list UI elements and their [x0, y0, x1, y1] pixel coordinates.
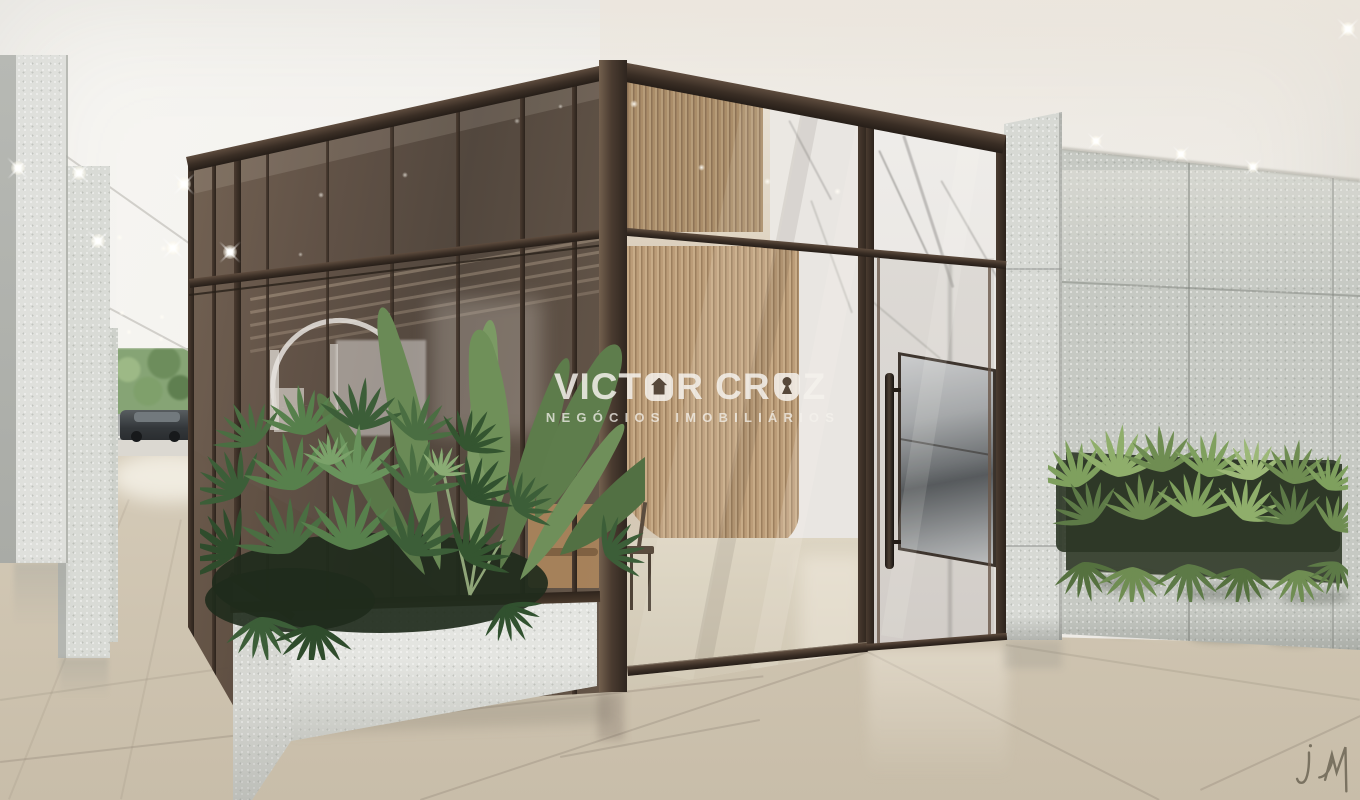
recessed-light [166, 241, 180, 255]
brand-text: VICTR CRZ [505, 368, 875, 405]
brand-part1: VICT [554, 368, 642, 405]
recessed-light [1341, 22, 1355, 36]
car-wheel [131, 431, 142, 442]
wall-light-wash [1062, 170, 1360, 290]
column [0, 55, 68, 563]
car-windows [134, 412, 180, 422]
floor-reflection [1004, 640, 1062, 668]
brand-part2: R CR [676, 368, 770, 405]
signature-mark: jm [1294, 734, 1360, 800]
recessed-light [11, 161, 25, 175]
recessed-light [158, 336, 164, 342]
stone-joint [1004, 268, 1062, 270]
glass-glint [318, 192, 324, 198]
floor-reflection [868, 648, 1008, 778]
recessed-light [1090, 135, 1101, 146]
door-stile [988, 262, 991, 644]
recessed-light [177, 177, 191, 191]
recessed-light [119, 310, 125, 316]
interior-light [630, 100, 638, 108]
recessed-light [1247, 161, 1258, 172]
street-view [112, 348, 192, 456]
recessed-light [223, 245, 237, 259]
house-icon [645, 373, 673, 401]
glass-glint [298, 252, 303, 257]
interior-light [834, 188, 841, 195]
column-reflection [14, 563, 68, 625]
parked-car [120, 410, 192, 440]
column-edge [66, 55, 68, 563]
door-stile [877, 258, 880, 650]
glass-glint [558, 104, 563, 109]
watermark: VICTR CRZ NEGÓCIOS IMOBILIÁRIOS [505, 368, 875, 425]
door-handle-standoff [893, 540, 901, 544]
monstera-leaves [1048, 420, 1348, 602]
wall-planter-foliage [1048, 392, 1348, 602]
recessed-light [126, 329, 132, 335]
recessed-light [116, 234, 123, 241]
keyhole-icon [774, 373, 800, 401]
recessed-light [72, 166, 86, 180]
stone-pillar-base-shadow [1004, 615, 1062, 640]
recessed-light [159, 314, 165, 320]
recessed-light [1175, 148, 1186, 159]
glass-glint [402, 172, 408, 178]
brand-part3: Z [803, 368, 827, 405]
car-wheel [169, 431, 180, 442]
column-side [0, 55, 16, 563]
column-reflection [60, 658, 108, 698]
planter-foliage [200, 265, 645, 660]
glass-mullion [996, 130, 1006, 642]
floor-reflection [598, 692, 624, 740]
sidewalk [112, 440, 192, 456]
lobby-render: VICTR CRZ NEGÓCIOS IMOBILIÁRIOS jm [0, 0, 1360, 800]
door-handle-standoff [893, 388, 901, 392]
column-face [16, 55, 66, 563]
brand-subtitle: NEGÓCIOS IMOBILIÁRIOS [505, 410, 875, 425]
recessed-light [91, 234, 105, 248]
interior-light [698, 164, 705, 171]
